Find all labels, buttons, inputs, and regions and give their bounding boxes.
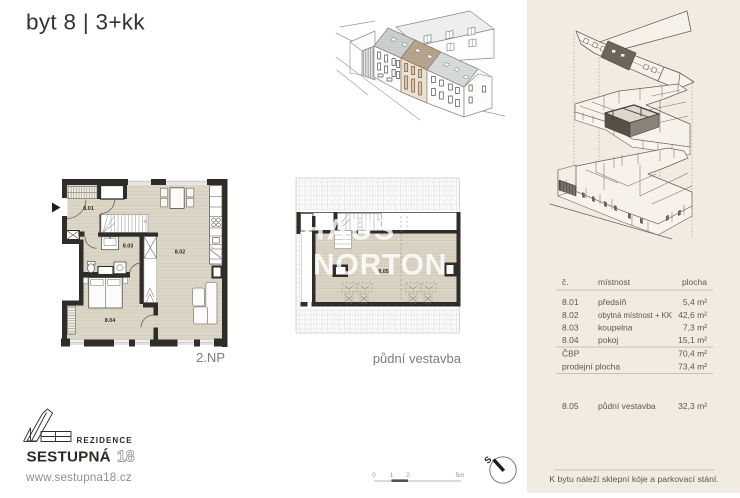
- svg-text:42,6 m²: 42,6 m²: [678, 310, 707, 320]
- svg-text:5m: 5m: [456, 472, 465, 479]
- svg-text:8.02: 8.02: [562, 310, 579, 320]
- svg-text:předsíň: předsíň: [598, 297, 627, 307]
- svg-text:8.05: 8.05: [562, 401, 579, 411]
- svg-text:prodejní plocha: prodejní plocha: [562, 362, 620, 372]
- svg-text:obytná místnost + KK: obytná místnost + KK: [598, 310, 672, 320]
- svg-text:č.: č.: [562, 277, 569, 287]
- svg-text:70,4 m²: 70,4 m²: [678, 349, 707, 359]
- svg-text:půdní vestavba: půdní vestavba: [373, 351, 462, 366]
- svg-text:K bytu náleží sklepní kóje a p: K bytu náleží sklepní kóje a parkovací s…: [549, 474, 719, 484]
- svg-text:8.04: 8.04: [562, 335, 579, 345]
- svg-text:plocha: plocha: [682, 277, 707, 287]
- svg-text:0: 0: [372, 472, 376, 479]
- svg-text:NORTON: NORTON: [313, 249, 447, 282]
- svg-text:5,4 m²: 5,4 m²: [683, 297, 707, 307]
- svg-text:32,3 m²: 32,3 m²: [678, 401, 707, 411]
- svg-text:HAUS: HAUS: [303, 214, 396, 247]
- svg-text:pokoj: pokoj: [598, 335, 618, 345]
- svg-text:půdní vestavba: půdní vestavba: [598, 401, 656, 411]
- svg-text:ČBP: ČBP: [562, 349, 580, 359]
- svg-text:8.03: 8.03: [562, 323, 579, 333]
- svg-text:REZIDENCE: REZIDENCE: [77, 436, 133, 445]
- svg-text:www.sestupna18.cz: www.sestupna18.cz: [25, 471, 132, 484]
- svg-text:2: 2: [406, 472, 410, 479]
- svg-text:2.NP: 2.NP: [196, 350, 225, 365]
- svg-text:místnost: místnost: [598, 277, 631, 287]
- svg-text:8.01: 8.01: [562, 297, 579, 307]
- svg-text:7,3 m²: 7,3 m²: [683, 323, 707, 333]
- svg-text:8.03: 8.03: [123, 244, 134, 250]
- svg-text:8.02: 8.02: [175, 250, 186, 256]
- svg-text:18: 18: [117, 449, 135, 466]
- svg-text:8.04: 8.04: [105, 318, 116, 324]
- svg-text:SESTUPNÁ: SESTUPNÁ: [27, 449, 111, 466]
- svg-text:15,1 m²: 15,1 m²: [678, 335, 707, 345]
- svg-text:73,4 m²: 73,4 m²: [678, 362, 707, 372]
- svg-text:byt 8 | 3+kk: byt 8 | 3+kk: [26, 10, 145, 35]
- svg-text:8.01: 8.01: [83, 206, 94, 212]
- svg-text:1: 1: [390, 472, 394, 479]
- svg-text:koupelna: koupelna: [598, 323, 633, 333]
